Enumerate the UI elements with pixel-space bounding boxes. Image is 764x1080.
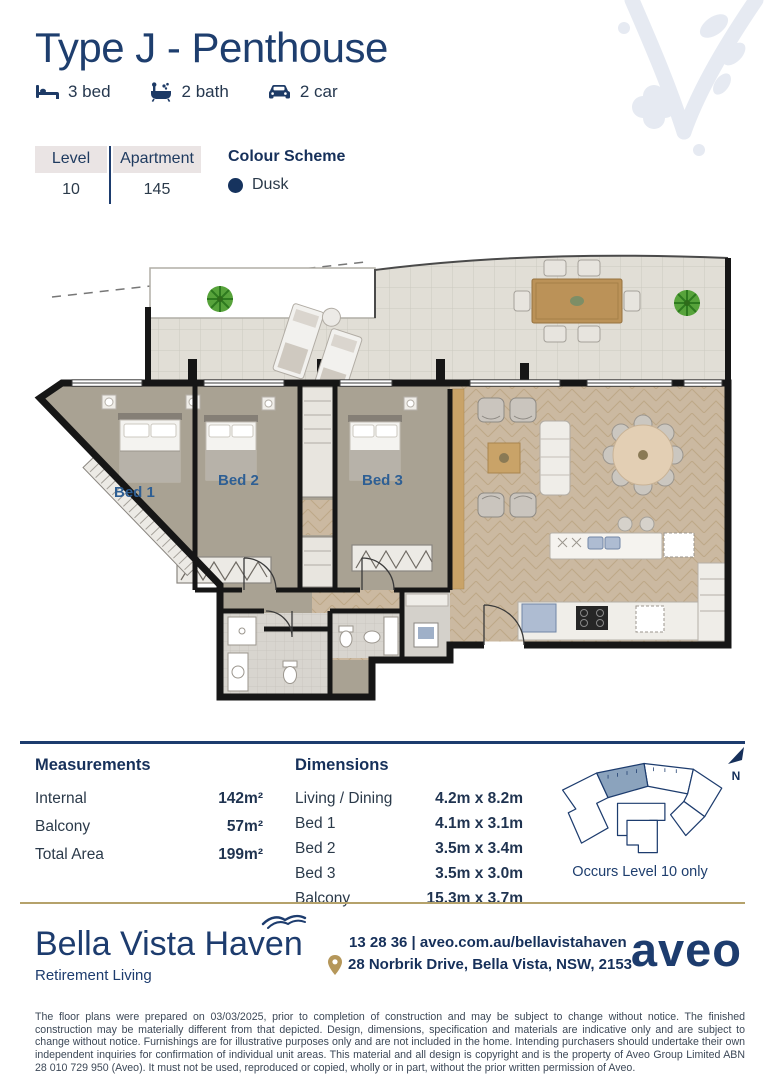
room-label-bed2: Bed 2	[218, 472, 259, 489]
brand-name: Bella Vista Haven	[35, 925, 303, 964]
measurement-row: Internal 142m²	[35, 790, 263, 808]
dimensions-heading: Dimensions	[295, 756, 523, 775]
dimension-label: Balcony	[295, 890, 350, 908]
dimension-value: 15.3m x 3.7m	[426, 890, 523, 908]
colour-scheme-swatch	[228, 178, 243, 193]
dimension-label: Bed 1	[295, 815, 336, 833]
page-title: Type J - Penthouse	[35, 24, 388, 72]
floor-plan: Bed 1 Bed 2 Bed 3	[32, 245, 732, 705]
measurement-value: 57m²	[227, 818, 263, 836]
feature-cars-label: 2 car	[300, 82, 338, 102]
dimension-row: Bed 2 3.5m x 3.4m	[295, 840, 523, 858]
car-icon	[267, 83, 291, 101]
section-divider-navy	[20, 741, 745, 744]
dimension-row: Bed 1 4.1m x 3.1m	[295, 815, 523, 833]
measurement-label: Balcony	[35, 818, 90, 836]
closet-nook-floor	[300, 500, 335, 535]
dimension-row: Balcony 15.3m x 3.7m	[295, 890, 523, 908]
dimension-row: Living / Dining 4.2m x 8.2m	[295, 790, 523, 808]
entry-timber-wall	[452, 389, 464, 589]
feature-baths: 2 bath	[149, 82, 229, 102]
location-pin-icon	[328, 955, 342, 975]
measurement-label: Total Area	[35, 846, 104, 864]
measurement-row: Balcony 57m²	[35, 818, 263, 836]
dimension-label: Bed 2	[295, 840, 336, 858]
feature-summary: 3 bed 2 bath 2 car	[35, 82, 338, 102]
measurement-label: Internal	[35, 790, 87, 808]
level-column: Level 10	[35, 146, 107, 204]
dimension-value: 3.5m x 3.0m	[435, 865, 523, 883]
bed-icon	[35, 83, 59, 101]
colour-scheme-block: Colour Scheme Dusk	[228, 148, 345, 194]
brand-tagline: Retirement Living	[35, 967, 303, 984]
aveo-logo: aveo	[631, 922, 742, 977]
contact-phone-web: 13 28 36 | aveo.com.au/bellavistahaven	[349, 932, 632, 954]
measurement-row: Total Area 199m²	[35, 846, 263, 864]
contact-block: 13 28 36 | aveo.com.au/bellavistahaven 2…	[328, 932, 632, 976]
dining-table	[603, 415, 683, 495]
room-label-bed3: Bed 3	[362, 472, 403, 489]
building-key-plan	[555, 754, 735, 864]
feature-beds-label: 3 bed	[68, 82, 111, 102]
bath-icon	[149, 82, 173, 102]
apartment-header: Apartment	[113, 146, 201, 173]
plant-icon	[674, 290, 700, 316]
unit-info-table: Level 10 Apartment 145	[35, 146, 201, 204]
plant-icon	[207, 286, 233, 312]
dimension-row: Bed 3 3.5m x 3.0m	[295, 865, 523, 883]
measurements-section: Measurements Internal 142m² Balcony 57m²…	[35, 756, 263, 874]
dimension-value: 4.2m x 8.2m	[435, 790, 523, 808]
colour-scheme-header: Colour Scheme	[228, 148, 345, 166]
colour-scheme-value: Dusk	[252, 176, 288, 194]
dimension-value: 3.5m x 3.4m	[435, 840, 523, 858]
disclaimer-text: The floor plans were prepared on 03/03/2…	[35, 1011, 745, 1076]
feature-cars: 2 car	[267, 82, 338, 102]
linen-closet	[302, 387, 333, 587]
room-label-bed1: Bed 1	[114, 484, 155, 501]
measurement-value: 199m²	[218, 846, 263, 864]
key-plan: N Occurs Level 10 only	[555, 746, 747, 898]
level-value: 10	[35, 173, 107, 199]
table-divider	[109, 146, 111, 204]
floorplan-brochure-page: Type J - Penthouse 3 bed 2 bath	[0, 0, 764, 1080]
dimension-label: Bed 3	[295, 865, 336, 883]
dimension-label: Living / Dining	[295, 790, 392, 808]
measurements-heading: Measurements	[35, 756, 263, 775]
brand-block: Bella Vista Haven Retirement Living	[35, 925, 303, 984]
balcony-void	[150, 268, 375, 318]
apartment-column: Apartment 145	[113, 146, 201, 204]
apartment-value: 145	[113, 173, 201, 199]
feature-beds: 3 bed	[35, 82, 111, 102]
measurement-value: 142m²	[218, 790, 263, 808]
contact-address: 28 Norbrik Drive, Bella Vista, NSW, 2153	[348, 954, 632, 976]
dimensions-section: Dimensions Living / Dining 4.2m x 8.2m B…	[295, 756, 523, 915]
dimension-value: 4.1m x 3.1m	[435, 815, 523, 833]
key-plan-caption: Occurs Level 10 only	[555, 864, 725, 880]
aveo-leaf-watermark	[594, 0, 764, 165]
level-header: Level	[35, 146, 107, 173]
feature-baths-label: 2 bath	[182, 82, 229, 102]
wave-swoosh-icon	[261, 912, 307, 929]
footer-divider-gold	[20, 902, 745, 904]
